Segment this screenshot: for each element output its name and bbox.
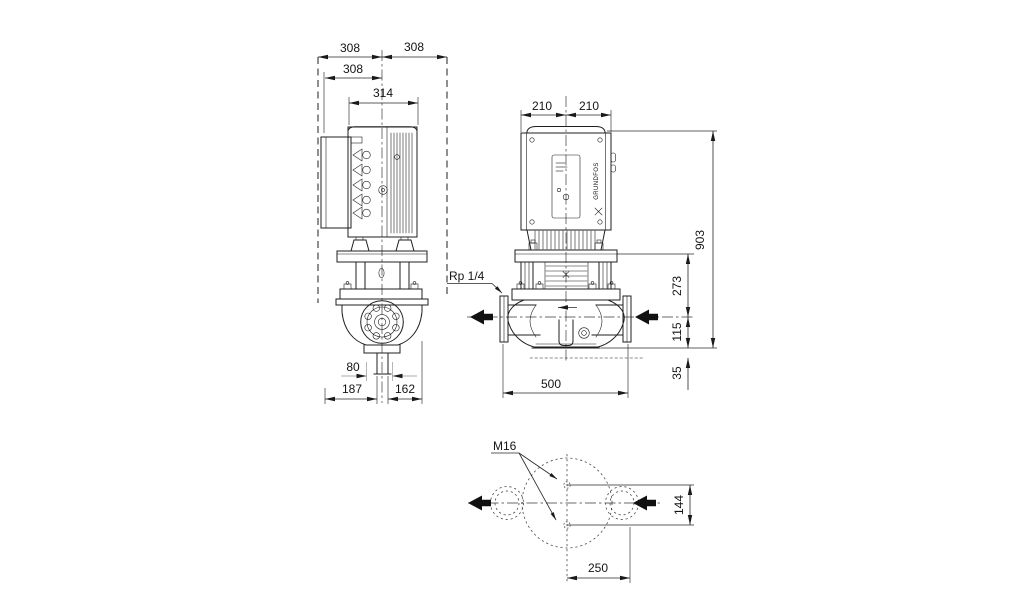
dim-center-to-left-label: 187 xyxy=(342,382,362,396)
bolt-thread-label: M16 xyxy=(493,439,517,453)
front-right-dimensions: 903 273 115 35 xyxy=(601,131,717,390)
port-flange-circle xyxy=(361,301,404,344)
terminal-box-side xyxy=(321,137,362,228)
motor-eyebolt xyxy=(379,186,388,195)
flow-arrow-inlet-bottom xyxy=(633,496,656,511)
dim-drain-bore-label: 80 xyxy=(346,360,360,374)
pump-head-flange xyxy=(340,289,422,299)
motor-side xyxy=(321,127,427,262)
side-top-dimensions: 308 308 308 314 xyxy=(318,40,447,133)
front-view: 210 210 GRUNDFOS xyxy=(447,96,717,398)
side-view: 308 308 308 314 xyxy=(318,40,447,404)
dim-box-to-center-label: 308 xyxy=(343,62,363,76)
flow-arrow-inlet xyxy=(635,310,658,325)
gland-bump xyxy=(611,153,616,162)
brand-label: GRUNDFOS xyxy=(594,162,600,200)
grundfos-logo-icon xyxy=(595,208,602,215)
bolt-callout: M16 xyxy=(491,439,557,520)
dim-center-to-right-label: 162 xyxy=(395,382,415,396)
drain-port xyxy=(374,353,391,374)
drain-plug xyxy=(579,328,590,339)
gauge-port-label: Rp 1/4 xyxy=(449,269,485,283)
pump-dimensional-drawing-page: 308 308 308 314 xyxy=(0,0,1034,611)
front-bottom-dimension: 500 xyxy=(503,344,628,398)
dim-width-left-label: 210 xyxy=(532,99,552,113)
dim-base-thickness-label: 35 xyxy=(670,366,684,380)
dim-center-to-face-label: 250 xyxy=(588,561,608,575)
side-bottom-dimensions: 80 187 162 xyxy=(325,341,422,404)
dim-swing-left-label: 308 xyxy=(340,41,360,55)
lantern-side xyxy=(340,262,422,299)
motor-body xyxy=(348,127,417,237)
pump-dimensional-drawing: 308 308 308 314 xyxy=(0,0,1034,611)
dim-swing-right-label: 308 xyxy=(404,40,424,54)
motor-foot-left xyxy=(351,240,369,251)
bottom-view: M16 144 250 xyxy=(468,439,694,584)
dim-overall-height-label: 903 xyxy=(693,230,707,250)
flow-arrow-outlet xyxy=(470,310,493,325)
flow-arrow-outlet-bottom xyxy=(468,496,491,511)
motor-foot-right xyxy=(396,240,414,251)
shaft-coupling xyxy=(379,268,384,277)
bottom-dimensions: 144 250 xyxy=(567,485,690,583)
gauge-port-callout: Rp 1/4 xyxy=(447,269,502,293)
dim-motor-width-label: 314 xyxy=(373,86,393,100)
dim-width-right-label: 210 xyxy=(579,99,599,113)
dim-port-to-base-label: 115 xyxy=(670,322,684,341)
cable-glands xyxy=(353,149,370,219)
volute-front xyxy=(500,296,643,358)
dim-flange-to-flange-label: 500 xyxy=(541,377,561,391)
dim-port-to-stool-label: 273 xyxy=(670,276,684,296)
dim-bolt-pitch-label: 144 xyxy=(672,495,686,515)
motor-top-cap xyxy=(348,127,417,133)
